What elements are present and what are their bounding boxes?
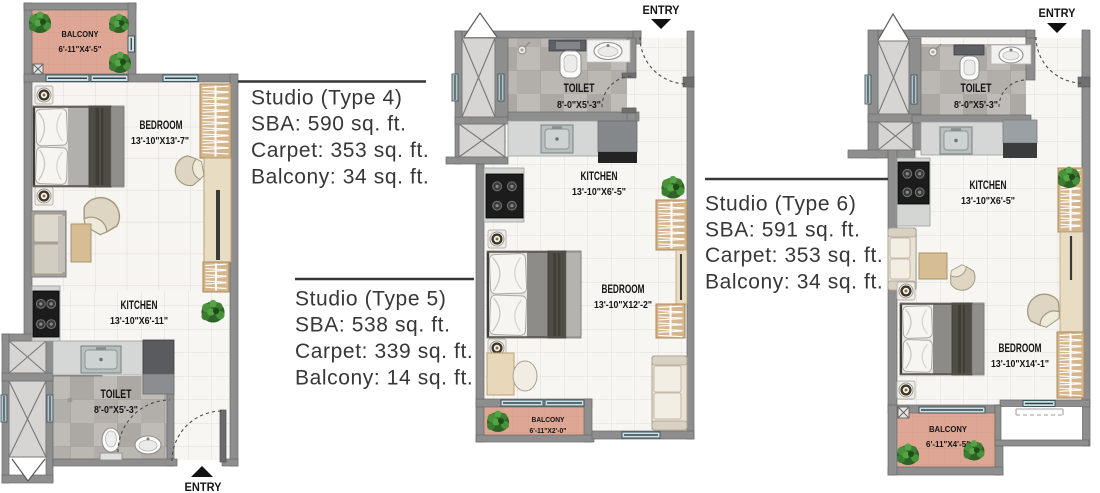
svg-text:Carpet: 353 sq. ft.: Carpet: 353 sq. ft. (705, 244, 883, 267)
svg-text:13'-10"X6'-11": 13'-10"X6'-11" (110, 315, 168, 327)
svg-text:SBA: 590 sq. ft.: SBA: 590 sq. ft. (251, 113, 407, 136)
svg-text:8'-0"X5'-3": 8'-0"X5'-3" (557, 99, 601, 111)
svg-text:Studio (Type 4): Studio (Type 4) (251, 87, 402, 110)
svg-text:Studio (Type 6): Studio (Type 6) (705, 193, 856, 216)
svg-text:Balcony: 14 sq. ft.: Balcony: 14 sq. ft. (295, 367, 473, 390)
svg-text:8'-0"X5'-3": 8'-0"X5'-3" (94, 404, 138, 416)
svg-text:BALCONY: BALCONY (62, 30, 100, 39)
svg-text:13'-10"X13'-7": 13'-10"X13'-7" (131, 135, 189, 147)
svg-text:BEDROOM: BEDROOM (602, 284, 645, 296)
svg-text:ENTRY: ENTRY (185, 480, 222, 493)
svg-text:13'-10"X6'-5": 13'-10"X6'-5" (572, 186, 626, 198)
svg-text:Balcony: 34 sq. ft.: Balcony: 34 sq. ft. (705, 271, 883, 294)
svg-text:SBA: 538 sq. ft.: SBA: 538 sq. ft. (295, 314, 451, 337)
svg-text:KITCHEN: KITCHEN (970, 180, 1007, 192)
svg-text:KITCHEN: KITCHEN (581, 171, 618, 183)
svg-text:BALCONY: BALCONY (532, 417, 565, 424)
svg-text:SBA: 591 sq. ft.: SBA: 591 sq. ft. (705, 219, 861, 242)
svg-text:TOILET: TOILET (564, 83, 595, 95)
svg-text:Studio (Type 5): Studio (Type 5) (295, 288, 446, 311)
svg-text:Carpet: 353 sq. ft.: Carpet: 353 sq. ft. (251, 139, 429, 162)
svg-text:KITCHEN: KITCHEN (121, 300, 158, 312)
svg-text:Balcony: 34 sq. ft.: Balcony: 34 sq. ft. (251, 166, 429, 189)
svg-text:6'-11"X4'-5": 6'-11"X4'-5" (59, 45, 102, 54)
svg-text:6'-11"X2'-0": 6'-11"X2'-0" (530, 428, 567, 435)
svg-text:13'-10"X6'-5": 13'-10"X6'-5" (961, 195, 1015, 207)
svg-text:TOILET: TOILET (101, 389, 132, 401)
svg-text:BEDROOM: BEDROOM (140, 120, 183, 132)
svg-text:13'-10"X12'-2": 13'-10"X12'-2" (594, 299, 652, 311)
svg-text:TOILET: TOILET (961, 83, 992, 95)
svg-text:13'-10"X14'-1": 13'-10"X14'-1" (991, 358, 1049, 370)
svg-text:ENTRY: ENTRY (643, 3, 680, 17)
svg-text:BALCONY: BALCONY (929, 425, 968, 434)
svg-text:ENTRY: ENTRY (1039, 6, 1076, 20)
svg-text:BEDROOM: BEDROOM (999, 343, 1042, 355)
svg-text:8'-0"X5'-3": 8'-0"X5'-3" (954, 99, 998, 111)
svg-text:Carpet: 339 sq. ft.: Carpet: 339 sq. ft. (295, 340, 473, 363)
svg-text:6'-11"X4'-5": 6'-11"X4'-5" (926, 440, 970, 449)
